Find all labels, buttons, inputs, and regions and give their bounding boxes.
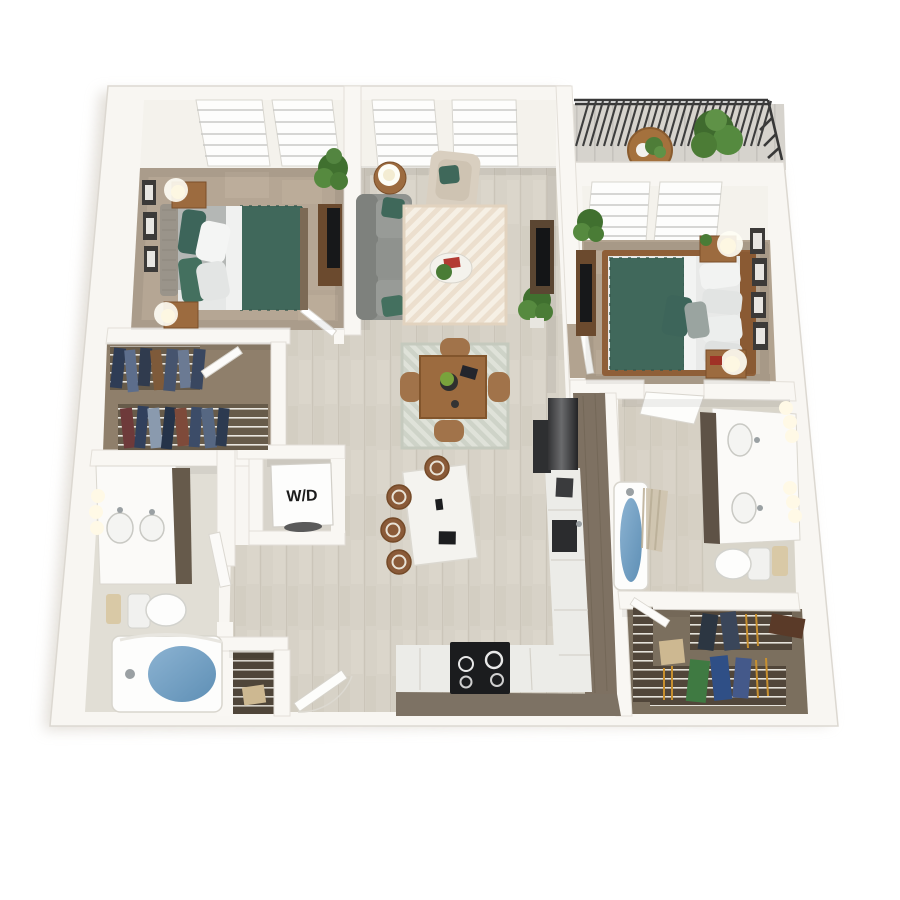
svg-text:W/D: W/D: [286, 487, 318, 505]
